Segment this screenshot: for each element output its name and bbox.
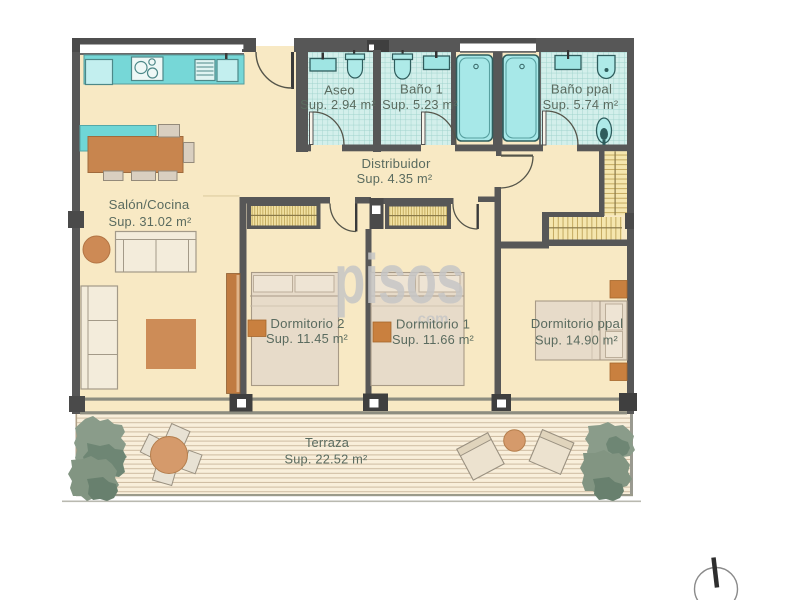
svg-text:Dormitorio 2: Dormitorio 2: [270, 316, 344, 331]
svg-text:Sup. 31.02 m²: Sup. 31.02 m²: [109, 214, 193, 229]
svg-text:Sup. 5.74 m²: Sup. 5.74 m²: [543, 97, 619, 112]
svg-text:Baño ppal: Baño ppal: [551, 82, 612, 97]
svg-text:Sup. 11.45 m²: Sup. 11.45 m²: [266, 331, 349, 346]
svg-text:pisos: pisos: [334, 240, 464, 318]
svg-text:Dormitorio 1: Dormitorio 1: [396, 317, 470, 332]
svg-text:Terraza: Terraza: [305, 435, 350, 450]
svg-text:Distribuidor: Distribuidor: [361, 156, 430, 171]
svg-text:Sup. 11.66 m²: Sup. 11.66 m²: [392, 332, 475, 347]
svg-text:Sup. 2.94 m²: Sup. 2.94 m²: [300, 97, 376, 112]
svg-text:Salón/Cocina: Salón/Cocina: [109, 197, 190, 212]
svg-text:Sup. 4.35 m²: Sup. 4.35 m²: [357, 171, 433, 186]
svg-text:Baño 1: Baño 1: [400, 82, 443, 97]
svg-text:Sup. 14.90 m²: Sup. 14.90 m²: [535, 333, 619, 348]
svg-text:Dormitorio ppal: Dormitorio ppal: [531, 316, 623, 331]
svg-text:Sup. 22.52 m²: Sup. 22.52 m²: [285, 452, 369, 467]
svg-text:Aseo: Aseo: [324, 83, 355, 98]
svg-text:Sup. 5.23 m²: Sup. 5.23 m²: [382, 97, 458, 112]
